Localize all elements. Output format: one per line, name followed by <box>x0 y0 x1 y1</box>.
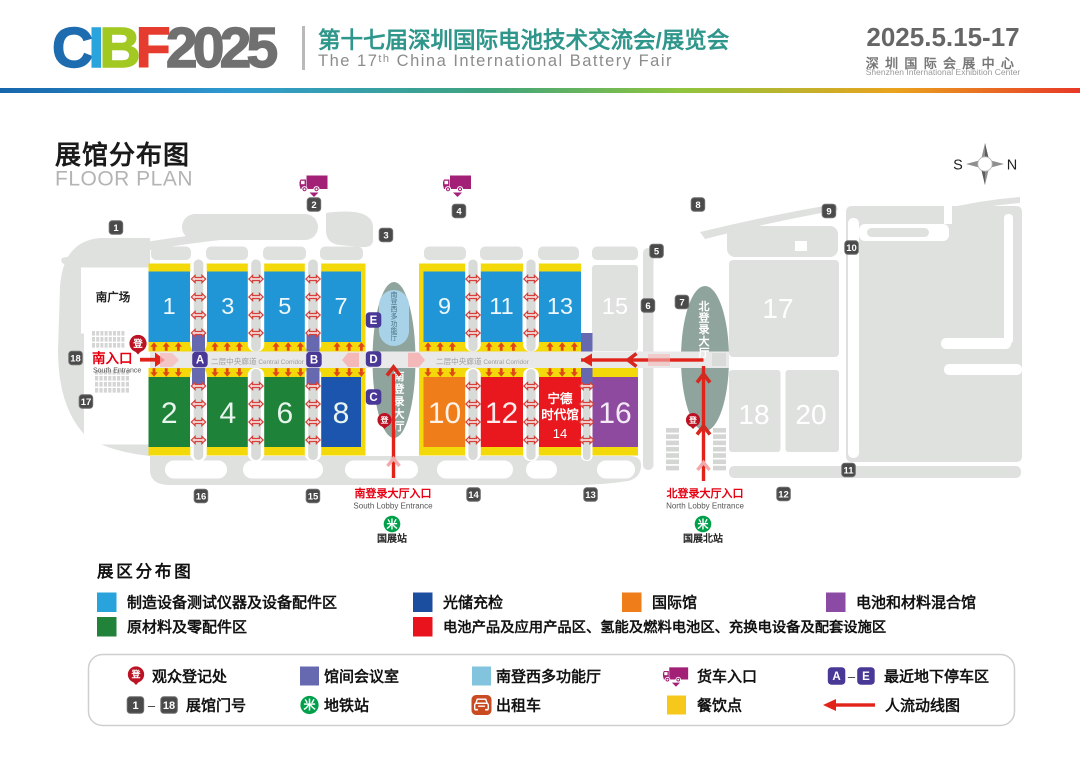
svg-text:–: – <box>848 669 856 684</box>
svg-text:4: 4 <box>219 397 236 430</box>
svg-text:FLOOR PLAN: FLOOR PLAN <box>55 168 193 191</box>
svg-text:1: 1 <box>113 223 119 234</box>
svg-text:大: 大 <box>699 334 710 348</box>
svg-text:10: 10 <box>846 243 857 254</box>
svg-text:最近地下停车区: 最近地下停车区 <box>884 668 989 686</box>
svg-text:South Entrance: South Entrance <box>93 368 141 375</box>
svg-text:E: E <box>862 671 870 683</box>
svg-text:厅: 厅 <box>699 346 710 359</box>
svg-text:18: 18 <box>163 700 175 712</box>
svg-text:原材料及零配件区: 原材料及零配件区 <box>127 618 247 636</box>
svg-text:17: 17 <box>762 293 793 324</box>
svg-text:8: 8 <box>333 397 350 430</box>
svg-text:16: 16 <box>598 397 631 430</box>
svg-text:D: D <box>369 354 377 366</box>
svg-text:9: 9 <box>826 206 831 217</box>
svg-text:光储充检: 光储充检 <box>442 594 503 612</box>
svg-text:2: 2 <box>161 397 178 430</box>
svg-text:电池产品及应用产品区、氢能及燃料电池区、充换电设备及配套设施: 电池产品及应用产品区、氢能及燃料电池区、充换电设备及配套设施区 <box>443 618 886 636</box>
svg-text:地铁站: 地铁站 <box>324 697 369 715</box>
svg-text:11: 11 <box>843 465 854 476</box>
svg-text:货车入口: 货车入口 <box>697 668 757 686</box>
svg-text:A: A <box>196 355 204 367</box>
svg-text:宁德: 宁德 <box>547 391 573 406</box>
svg-text:11: 11 <box>489 293 513 319</box>
svg-text:展区分布图: 展区分布图 <box>97 561 194 581</box>
svg-text:14: 14 <box>553 426 567 441</box>
svg-text:南登西多功能厅: 南登西多功能厅 <box>496 668 601 686</box>
svg-text:北: 北 <box>699 299 710 313</box>
svg-text:5: 5 <box>654 246 660 257</box>
svg-text:4: 4 <box>456 206 462 217</box>
svg-text:E: E <box>370 315 378 327</box>
svg-text:17: 17 <box>81 397 92 408</box>
svg-text:登: 登 <box>698 311 711 325</box>
svg-text:15: 15 <box>308 491 319 502</box>
svg-text:18: 18 <box>70 353 81 364</box>
svg-text:3: 3 <box>221 293 234 319</box>
svg-text:能: 能 <box>391 326 398 335</box>
svg-text:国际馆: 国际馆 <box>652 594 697 612</box>
svg-text:观众登记处: 观众登记处 <box>152 668 228 686</box>
svg-text:南广场: 南广场 <box>96 290 131 304</box>
svg-text:功: 功 <box>391 320 398 328</box>
svg-text:20: 20 <box>795 399 826 430</box>
svg-text:S: S <box>953 158 963 174</box>
svg-text:N: N <box>1007 158 1017 174</box>
svg-text:西: 西 <box>391 305 398 313</box>
svg-text:14: 14 <box>468 490 479 501</box>
svg-text:出租车: 出租车 <box>496 697 541 715</box>
svg-text:展馆分布图: 展馆分布图 <box>55 140 190 170</box>
svg-text:North Lobby Entrance: North Lobby Entrance <box>666 502 744 511</box>
svg-text:电池和材料混合馆: 电池和材料混合馆 <box>856 594 976 612</box>
svg-text:1: 1 <box>163 293 176 319</box>
svg-text:国展北站: 国展北站 <box>683 532 723 545</box>
svg-text:13: 13 <box>585 490 596 501</box>
svg-text:时代馆: 时代馆 <box>541 407 579 422</box>
svg-text:2: 2 <box>311 200 316 211</box>
svg-text:–: – <box>148 698 156 713</box>
svg-text:9: 9 <box>438 293 451 319</box>
svg-text:7: 7 <box>334 293 347 319</box>
svg-text:13: 13 <box>547 293 573 319</box>
svg-text:12: 12 <box>485 397 518 430</box>
svg-text:人流动线图: 人流动线图 <box>885 697 960 715</box>
svg-text:1: 1 <box>132 700 138 712</box>
svg-text:5: 5 <box>278 293 291 319</box>
svg-text:国展站: 国展站 <box>377 532 407 545</box>
svg-text:展馆门号: 展馆门号 <box>186 697 246 715</box>
svg-text:A: A <box>832 671 840 683</box>
svg-text:12: 12 <box>778 489 789 500</box>
svg-text:18: 18 <box>738 399 769 430</box>
svg-text:南入口: 南入口 <box>92 350 133 366</box>
svg-text:C: C <box>369 392 377 404</box>
svg-text:10: 10 <box>428 397 461 430</box>
svg-text:馆间会议室: 馆间会议室 <box>324 668 399 686</box>
svg-text:B: B <box>310 355 318 367</box>
svg-text:7: 7 <box>679 297 684 308</box>
svg-text:厅: 厅 <box>391 334 398 342</box>
svg-text:南登录大厅入口: 南登录大厅入口 <box>355 486 432 500</box>
svg-text:6: 6 <box>276 397 293 430</box>
svg-text:北登录大厅入口: 北登录大厅入口 <box>667 486 744 500</box>
svg-text:南: 南 <box>391 290 398 299</box>
svg-text:South Lobby Entrance: South Lobby Entrance <box>353 502 433 511</box>
svg-text:录: 录 <box>699 323 710 336</box>
svg-text:多: 多 <box>391 312 398 321</box>
svg-text:8: 8 <box>695 200 700 211</box>
svg-text:制造设备测试仪器及设备配件区: 制造设备测试仪器及设备配件区 <box>127 594 337 612</box>
svg-text:15: 15 <box>602 293 628 319</box>
svg-text:16: 16 <box>196 491 207 502</box>
svg-text:6: 6 <box>645 301 650 312</box>
svg-text:登: 登 <box>391 297 398 306</box>
svg-text:餐饮点: 餐饮点 <box>697 697 742 715</box>
svg-text:3: 3 <box>383 230 388 241</box>
